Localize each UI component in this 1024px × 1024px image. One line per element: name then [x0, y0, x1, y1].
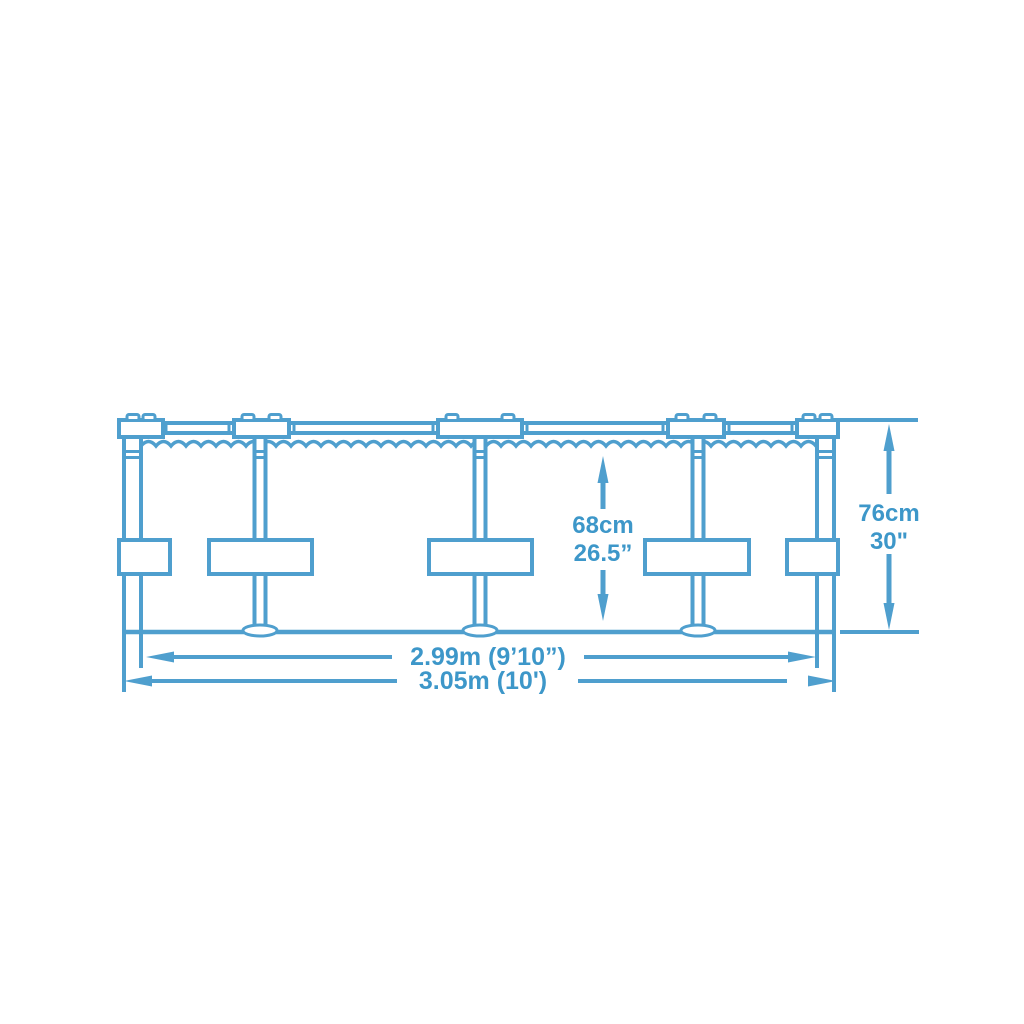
rail-joint-cap: [438, 420, 522, 437]
pool-dimension-diagram: 68cm 26.5” 76cm 30" 2.99m (9’10”) 3.05m …: [0, 0, 1024, 1024]
dim-total-height: 76cm 30": [838, 420, 920, 632]
arrow-up-head: [884, 424, 895, 451]
cap-pin: [502, 415, 514, 421]
water-height-imperial-label: 26.5”: [574, 540, 633, 567]
wall-band: [209, 540, 312, 574]
rail-joint-cap: [234, 420, 289, 437]
cap-pin: [269, 415, 281, 421]
wall-band: [119, 540, 170, 574]
wall-band: [429, 540, 532, 574]
cap-pin: [242, 415, 254, 421]
rail-joint-cap: [668, 420, 724, 437]
dim-outer-diameter: 3.05m (10'): [124, 667, 836, 695]
total-height-imperial-label: 30": [870, 528, 908, 555]
leg-foot: [681, 625, 715, 636]
diagram-canvas: 68cm 26.5” 76cm 30" 2.99m (9’10”) 3.05m …: [0, 0, 1024, 1024]
arrow-right-head: [788, 652, 816, 663]
cap-pin: [803, 415, 815, 421]
outer-diameter-label: 3.05m (10'): [419, 667, 547, 695]
arrow-left-head: [146, 652, 174, 663]
water-height-metric-label: 68cm: [572, 512, 633, 539]
cap-pin: [143, 415, 155, 421]
arrow-down-head: [598, 594, 609, 621]
dim-water-height: 68cm 26.5”: [572, 456, 633, 621]
arrow-right-head: [808, 676, 836, 687]
cap-pin: [704, 415, 716, 421]
arrow-up-head: [598, 456, 609, 483]
arrow-down-head: [884, 603, 895, 630]
wall-band: [645, 540, 749, 574]
cap-pin: [676, 415, 688, 421]
arrow-left-head: [124, 676, 152, 687]
cap-pin: [127, 415, 139, 421]
cap-pin: [446, 415, 458, 421]
rail-joint-cap: [797, 420, 838, 437]
wall-band: [787, 540, 838, 574]
cap-pin: [820, 415, 832, 421]
rail-joint-cap: [119, 420, 163, 437]
leg-foot: [463, 625, 497, 636]
total-height-metric-label: 76cm: [858, 500, 919, 527]
leg-foot: [243, 625, 277, 636]
